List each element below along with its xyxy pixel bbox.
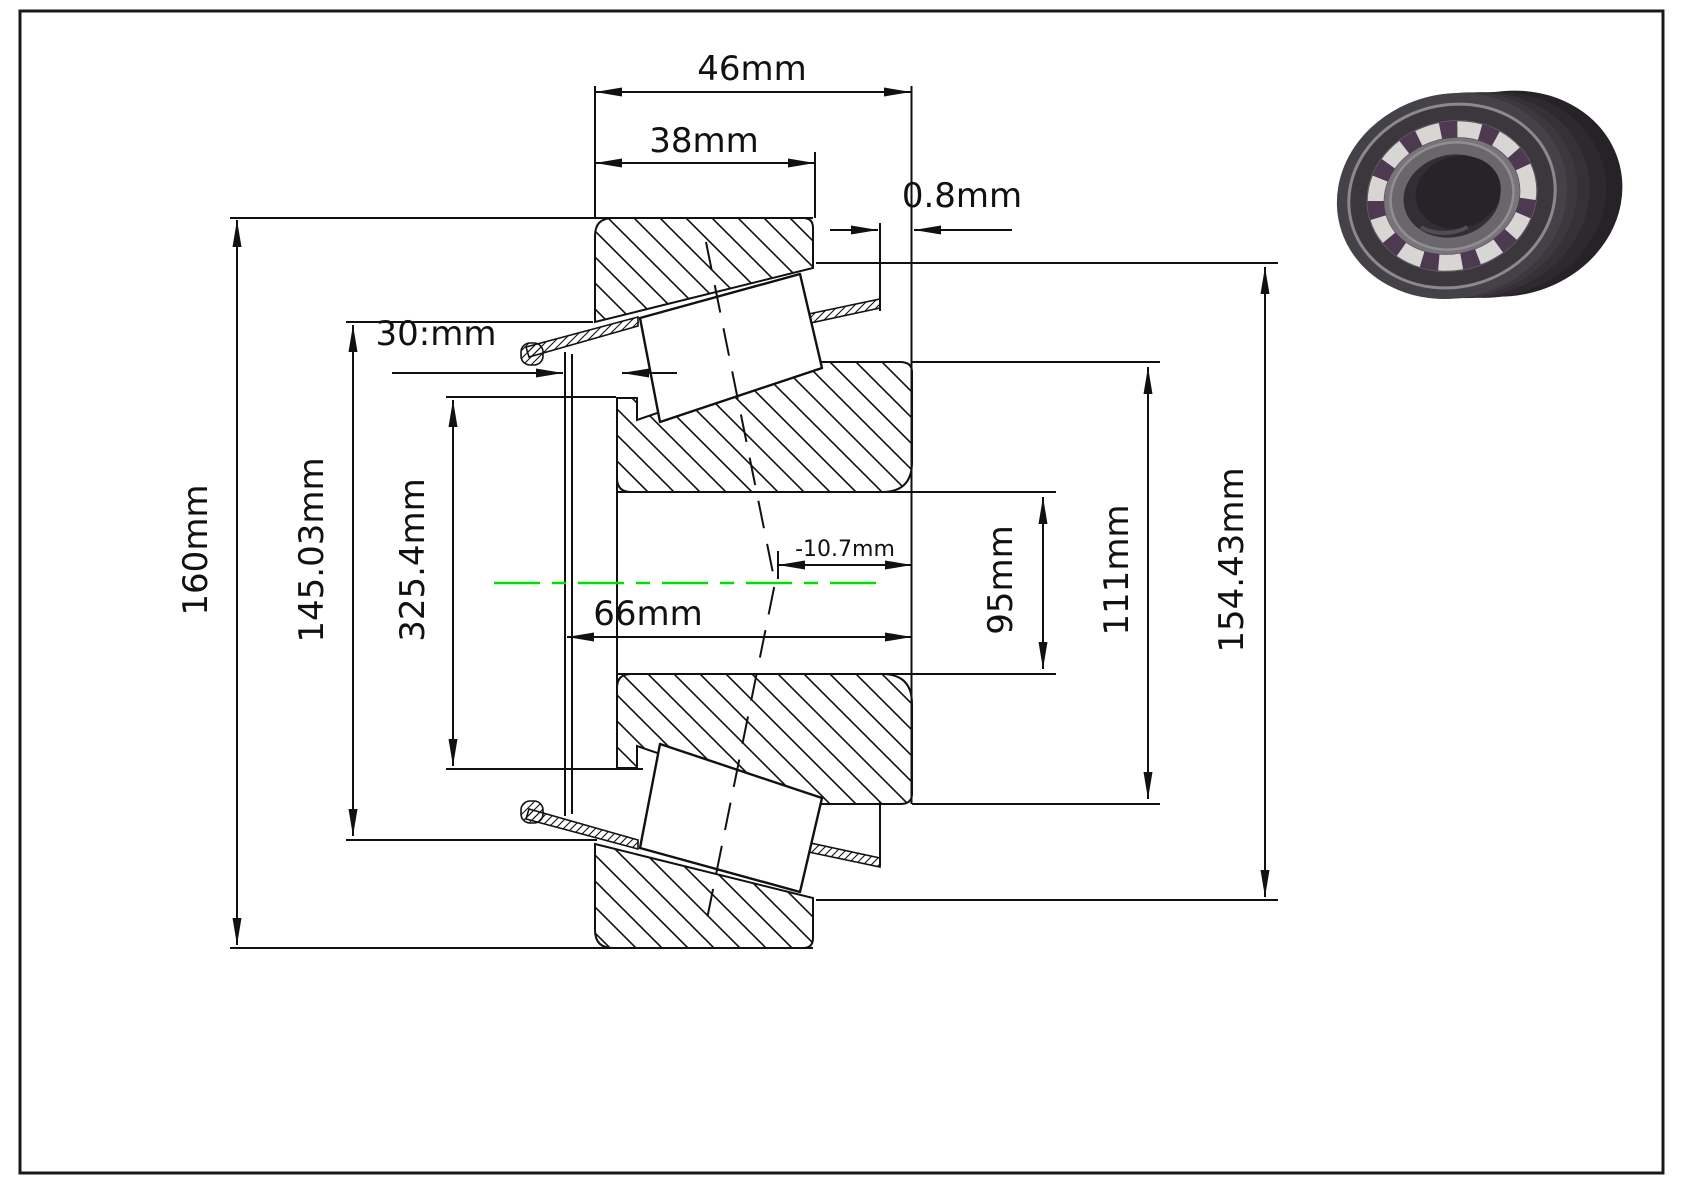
dim-label-effective-center: -10.7mm — [795, 537, 895, 562]
dim-label-rib-diameter: 111mm — [1097, 504, 1137, 635]
dim-label-cup-back-diameter: 154.43mm — [1212, 467, 1252, 652]
dim-label-cone-width: 66mm — [593, 594, 703, 634]
dim-label-shoulder-od: 325.4mm — [393, 478, 433, 642]
dim-label-bore-diameter: 95mm — [981, 525, 1021, 635]
bearing-drawing-canvas: 46mm 38mm 0.8mm 30:mm 160mm 145.03mm 325… — [0, 0, 1684, 1191]
cage-lip-top — [521, 343, 543, 365]
dim-label-protrusion: 0.8mm — [902, 176, 1022, 216]
bearing-3d-thumbnail — [1314, 53, 1646, 336]
cage-lip-bottom — [521, 801, 543, 823]
dim-label-housing-od: 160mm — [176, 484, 216, 615]
drawing-page: 46mm 38mm 0.8mm 30:mm 160mm 145.03mm 325… — [0, 0, 1684, 1191]
dim-label-cup-width: 38mm — [649, 121, 759, 161]
dim-label-cage-width: 30:mm — [376, 314, 497, 354]
dim-label-total-width: 46mm — [697, 49, 807, 89]
dim-label-flange-od: 145.03mm — [292, 457, 332, 642]
